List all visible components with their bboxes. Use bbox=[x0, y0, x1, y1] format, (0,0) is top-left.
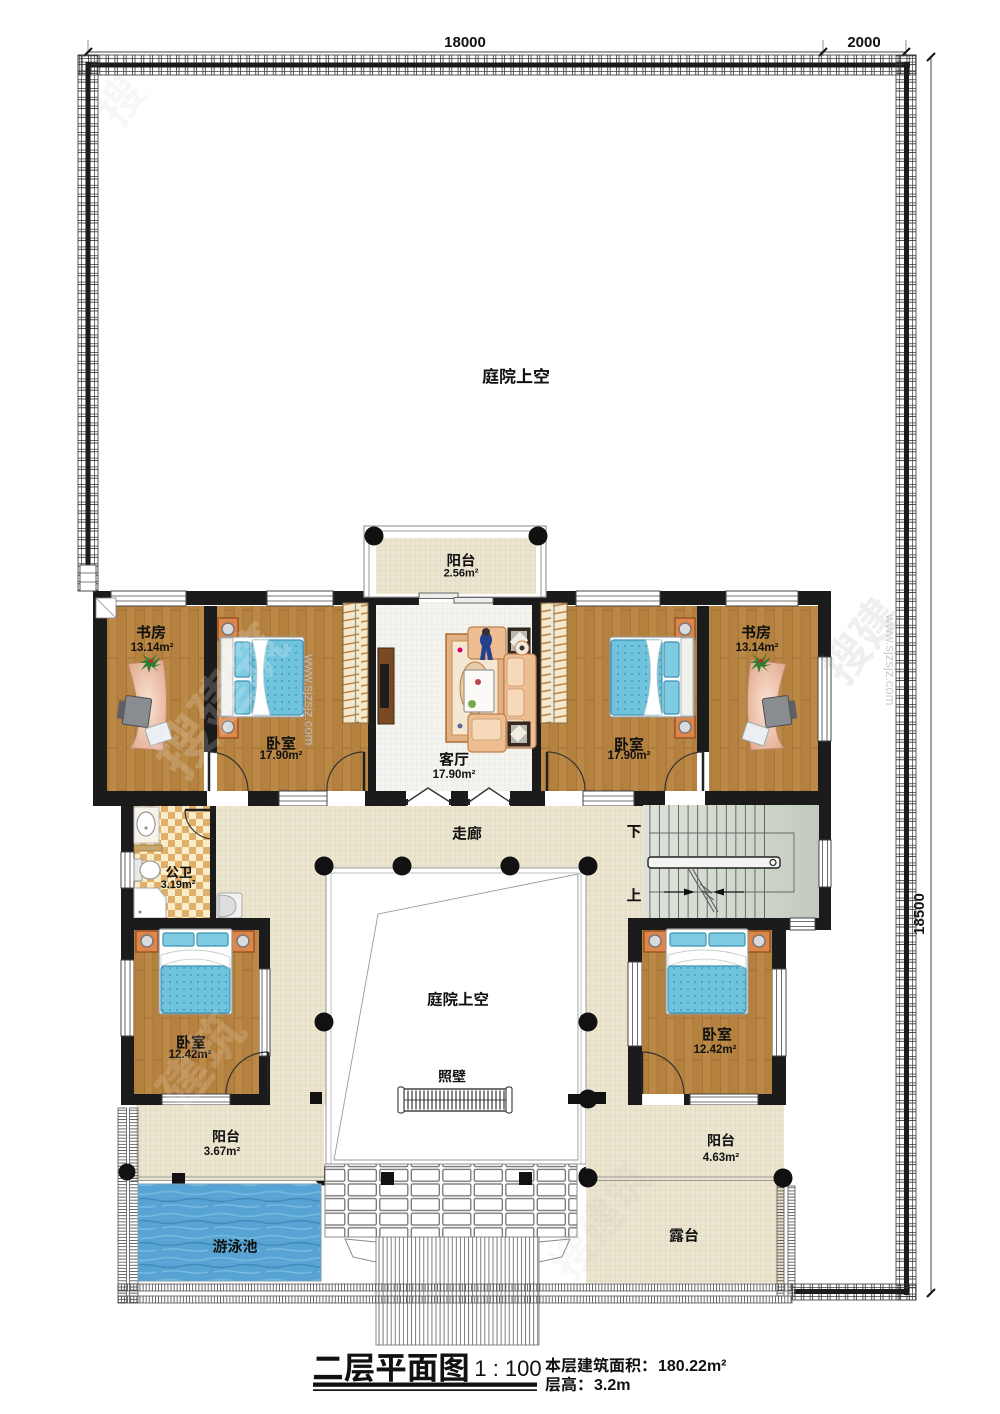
svg-text:4.63m²: 4.63m² bbox=[703, 1152, 740, 1164]
svg-text:18000: 18000 bbox=[444, 34, 486, 51]
svg-text:17.90m²: 17.90m² bbox=[433, 769, 476, 781]
svg-text:3.67m²: 3.67m² bbox=[204, 1146, 241, 1158]
svg-text:3.2m: 3.2m bbox=[594, 1377, 630, 1394]
svg-text:12.42m²: 12.42m² bbox=[694, 1044, 737, 1056]
svg-text:www.sjzsjz.com: www.sjzsjz.com bbox=[302, 653, 317, 745]
svg-text:1 : 100: 1 : 100 bbox=[474, 1356, 541, 1381]
svg-text:13.14m²: 13.14m² bbox=[131, 642, 174, 654]
svg-text:17.90m²: 17.90m² bbox=[260, 750, 303, 762]
svg-text:3.19m²: 3.19m² bbox=[161, 879, 196, 891]
svg-text:2000: 2000 bbox=[847, 34, 880, 51]
svg-text:2.56m²: 2.56m² bbox=[444, 568, 479, 580]
svg-text:180.22m²: 180.22m² bbox=[658, 1358, 727, 1375]
svg-text:www.sjzsjz.com: www.sjzsjz.com bbox=[883, 613, 898, 705]
svg-text:13.14m²: 13.14m² bbox=[736, 642, 779, 654]
svg-text:17.90m²: 17.90m² bbox=[608, 750, 651, 762]
